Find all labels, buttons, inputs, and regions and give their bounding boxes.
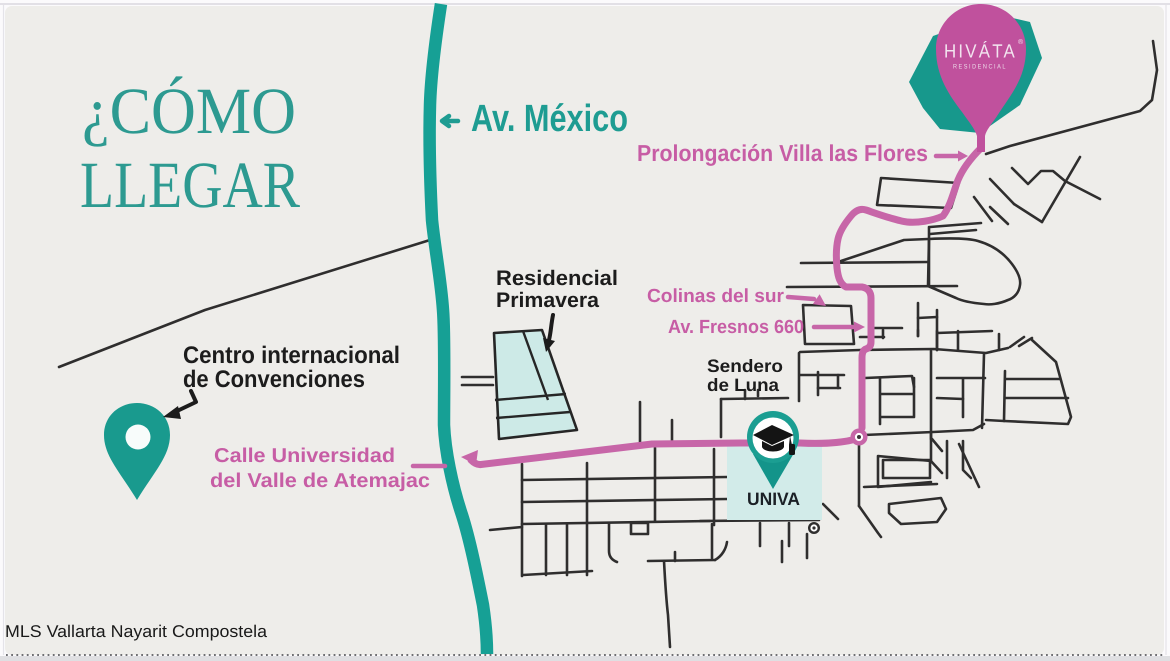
svg-text:®: ®: [1018, 39, 1024, 46]
svg-text:de Convenciones: de Convenciones: [183, 366, 365, 393]
svg-text:¿CÓMO: ¿CÓMO: [82, 75, 296, 148]
svg-text:Centro internacional: Centro internacional: [183, 342, 400, 369]
svg-text:Colinas del sur: Colinas del sur: [647, 286, 785, 307]
svg-text:UNIVA: UNIVA: [747, 489, 800, 509]
svg-text:Av. Fresnos 660: Av. Fresnos 660: [668, 317, 804, 338]
svg-text:Calle Universidad: Calle Universidad: [214, 445, 395, 467]
svg-text:de Luna: de Luna: [707, 375, 780, 395]
svg-text:Residencial: Residencial: [496, 267, 618, 290]
svg-text:Prolongación Villa las Flores: Prolongación Villa las Flores: [637, 140, 928, 166]
svg-text:MLS Vallarta Nayarit Compostel: MLS Vallarta Nayarit Compostela: [5, 622, 268, 641]
svg-text:LLEGAR: LLEGAR: [80, 149, 300, 222]
svg-text:del Valle de Atemajac: del Valle de Atemajac: [210, 470, 430, 492]
svg-text:Av. México: Av. México: [471, 98, 628, 140]
svg-text:Primavera: Primavera: [496, 289, 599, 312]
svg-text:RESIDENCIAL: RESIDENCIAL: [953, 64, 1007, 71]
svg-text:HIVÁTA: HIVÁTA: [944, 41, 1017, 63]
svg-text:Sendero: Sendero: [707, 356, 783, 376]
